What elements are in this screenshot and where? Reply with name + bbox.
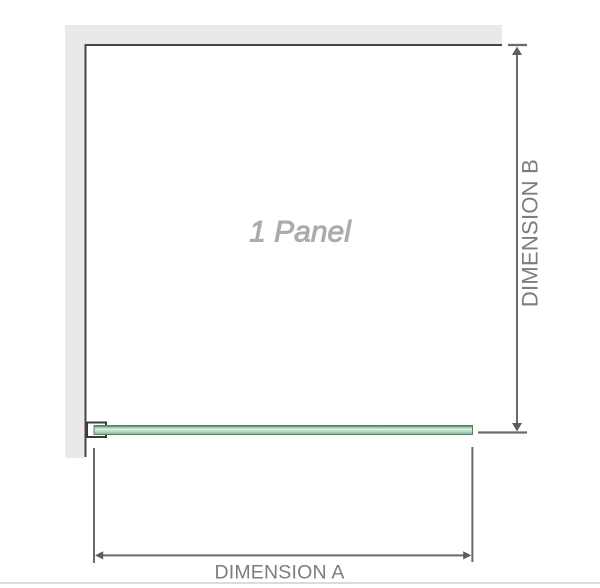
svg-text:DIMENSION B: DIMENSION B <box>517 159 542 307</box>
svg-text:1 Panel: 1 Panel <box>249 216 352 249</box>
svg-text:DIMENSION A: DIMENSION A <box>214 562 344 584</box>
